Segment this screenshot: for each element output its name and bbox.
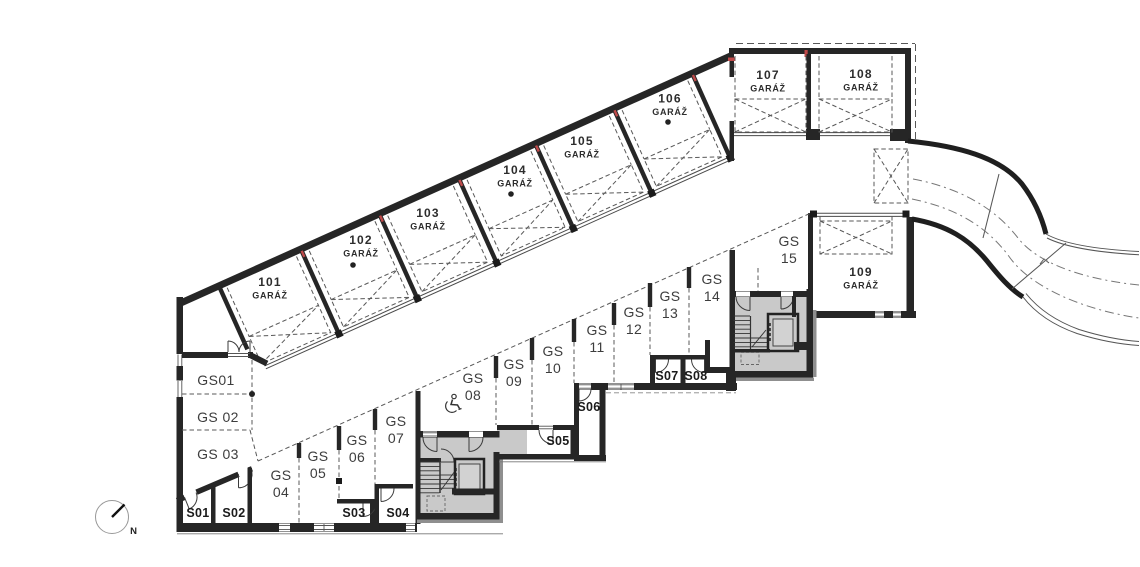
- svg-text:N: N: [130, 526, 137, 537]
- svg-text:15: 15: [781, 250, 797, 266]
- svg-text:GS: GS: [701, 271, 722, 287]
- svg-text:GS: GS: [307, 448, 328, 464]
- svg-text:GS 03: GS 03: [197, 446, 239, 462]
- svg-text:GS: GS: [659, 288, 680, 304]
- svg-text:105: 105: [570, 134, 594, 148]
- svg-text:S04: S04: [386, 506, 409, 520]
- svg-text:09: 09: [506, 373, 522, 389]
- svg-text:S02: S02: [222, 506, 245, 520]
- svg-text:S01: S01: [186, 506, 209, 520]
- svg-text:106: 106: [658, 92, 682, 106]
- svg-text:07: 07: [388, 430, 404, 446]
- svg-text:14: 14: [704, 288, 720, 304]
- svg-text:S05: S05: [546, 434, 569, 448]
- svg-text:05: 05: [310, 465, 326, 481]
- svg-text:103: 103: [416, 206, 440, 220]
- svg-text:GS: GS: [503, 356, 524, 372]
- svg-text:S06: S06: [577, 400, 600, 414]
- svg-text:GARÁŽ: GARÁŽ: [564, 149, 600, 160]
- svg-text:107: 107: [756, 68, 780, 82]
- svg-text:GS: GS: [385, 413, 406, 429]
- svg-text:S08: S08: [684, 369, 707, 383]
- svg-text:GS 02: GS 02: [197, 409, 239, 425]
- svg-text:GARÁŽ: GARÁŽ: [252, 290, 288, 301]
- svg-text:S03: S03: [342, 506, 365, 520]
- svg-text:04: 04: [273, 484, 289, 500]
- svg-text:GS01: GS01: [197, 372, 234, 388]
- svg-text:GARÁŽ: GARÁŽ: [750, 83, 786, 94]
- svg-text:101: 101: [258, 275, 282, 289]
- svg-text:109: 109: [849, 265, 873, 279]
- svg-text:GS: GS: [623, 304, 644, 320]
- svg-text:GS: GS: [270, 467, 291, 483]
- svg-text:10: 10: [545, 360, 561, 376]
- svg-text:GARÁŽ: GARÁŽ: [652, 106, 688, 117]
- svg-text:GARÁŽ: GARÁŽ: [843, 82, 879, 93]
- svg-text:GS: GS: [778, 233, 799, 249]
- svg-text:12: 12: [626, 321, 642, 337]
- svg-text:GARÁŽ: GARÁŽ: [843, 280, 879, 291]
- svg-text:11: 11: [589, 339, 604, 355]
- svg-text:108: 108: [849, 67, 873, 81]
- svg-text:S07: S07: [655, 369, 678, 383]
- svg-text:GARÁŽ: GARÁŽ: [410, 221, 446, 232]
- svg-text:GARÁŽ: GARÁŽ: [497, 178, 533, 189]
- svg-text:104: 104: [503, 163, 527, 177]
- svg-text:06: 06: [349, 449, 365, 465]
- svg-text:GS: GS: [542, 343, 563, 359]
- svg-text:GS: GS: [346, 432, 367, 448]
- svg-text:13: 13: [662, 305, 678, 321]
- svg-text:102: 102: [349, 233, 373, 247]
- svg-text:GARÁŽ: GARÁŽ: [343, 248, 379, 259]
- svg-text:GS: GS: [586, 322, 607, 338]
- svg-text:08: 08: [465, 387, 481, 403]
- svg-text:GS: GS: [462, 370, 483, 386]
